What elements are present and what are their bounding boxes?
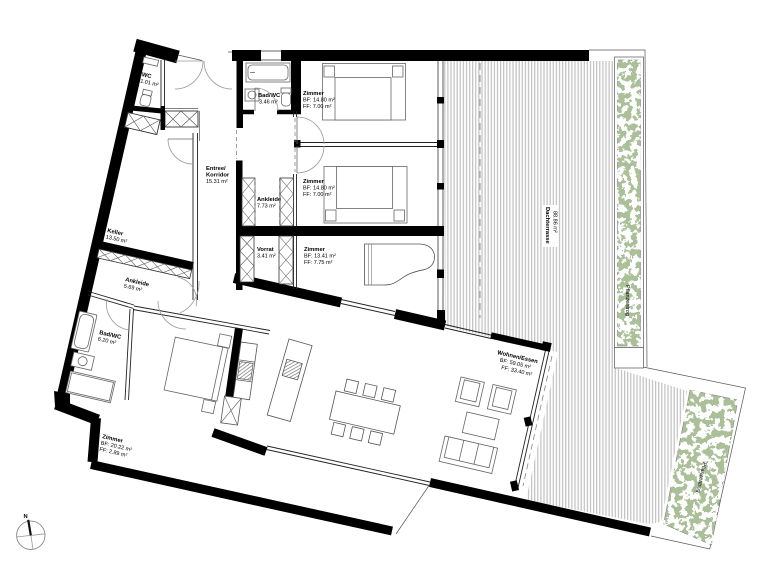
svg-text:Zimmer: Zimmer bbox=[303, 179, 325, 185]
svg-text:3.46 m²: 3.46 m² bbox=[259, 100, 278, 106]
svg-text:N: N bbox=[24, 514, 28, 520]
svg-text:Korridor: Korridor bbox=[206, 173, 230, 179]
svg-text:Dachterrasse: Dachterrasse bbox=[544, 207, 550, 245]
svg-text:Zimmer: Zimmer bbox=[303, 91, 325, 97]
svg-text:Zimmer: Zimmer bbox=[304, 247, 326, 253]
svg-text:7.73 m²: 7.73 m² bbox=[257, 204, 276, 210]
svg-text:BF: 14.80 m²: BF: 14.80 m² bbox=[303, 98, 335, 104]
svg-text:Pflanzentrog: Pflanzentrog bbox=[624, 285, 630, 316]
svg-text:FF: 7.00 m²: FF: 7.00 m² bbox=[303, 192, 332, 198]
svg-text:Bad/WC: Bad/WC bbox=[258, 93, 281, 99]
svg-text:Entree/: Entree/ bbox=[206, 166, 226, 172]
svg-text:Vorrat: Vorrat bbox=[257, 247, 274, 253]
svg-text:BF: 14.80 m²: BF: 14.80 m² bbox=[303, 186, 335, 192]
svg-text:Ankleide: Ankleide bbox=[257, 197, 282, 203]
svg-text:88.86 m²: 88.86 m² bbox=[552, 211, 558, 233]
svg-text:BF: 13.41 m²: BF: 13.41 m² bbox=[304, 254, 336, 260]
svg-text:3.41 m²: 3.41 m² bbox=[257, 254, 276, 260]
svg-text:FF: 7.00 m²: FF: 7.00 m² bbox=[303, 104, 332, 110]
svg-text:FF: 7.75 m²: FF: 7.75 m² bbox=[304, 260, 333, 266]
svg-text:15.31 m²: 15.31 m² bbox=[206, 179, 228, 185]
